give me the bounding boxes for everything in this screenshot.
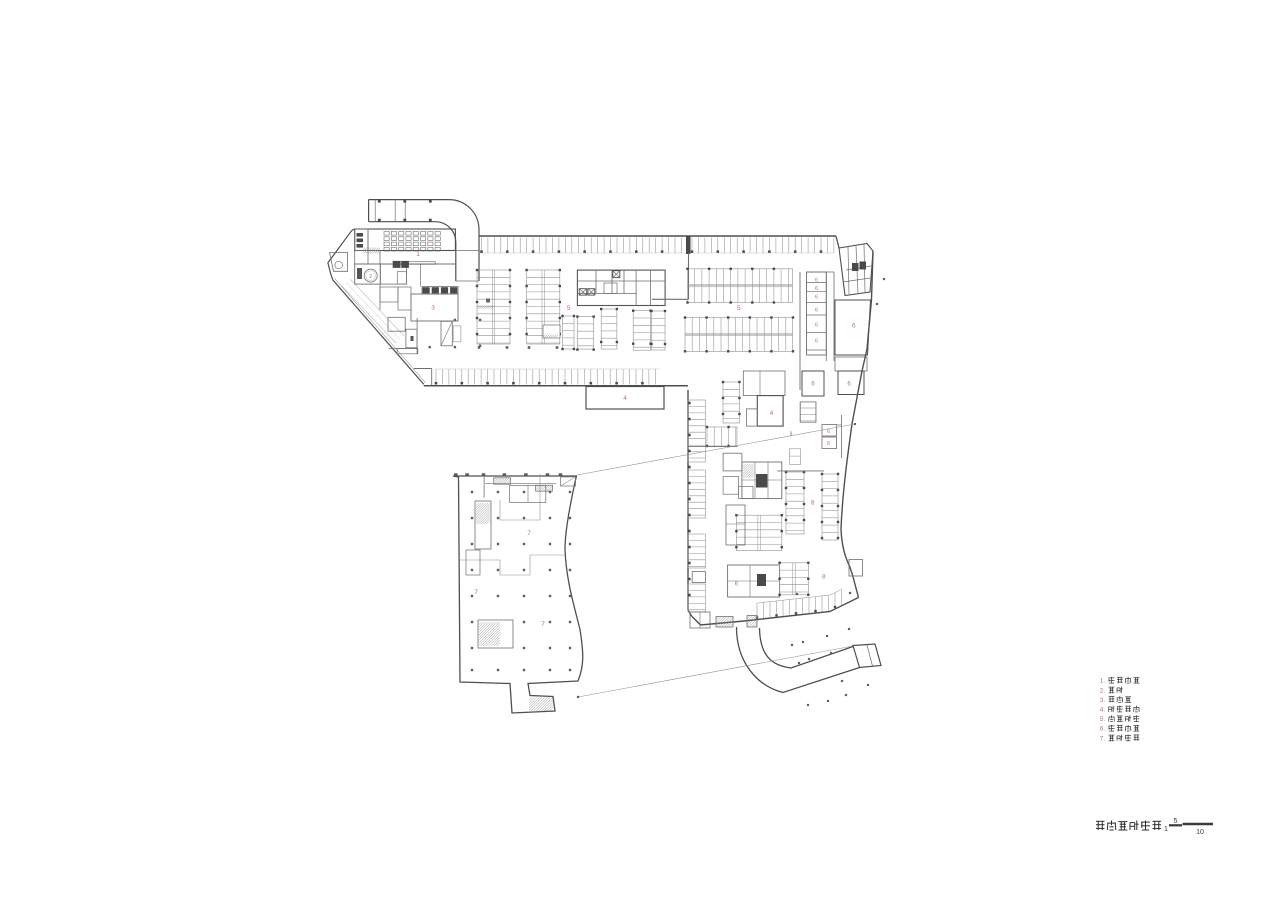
svg-text:5: 5 — [737, 305, 741, 312]
svg-text:8: 8 — [822, 574, 826, 581]
svg-text:4.: 4. — [1100, 707, 1106, 714]
svg-text:7: 7 — [474, 589, 478, 596]
svg-text:6: 6 — [815, 278, 818, 284]
svg-text:1: 1 — [416, 251, 420, 258]
svg-text:5: 5 — [1174, 818, 1178, 825]
svg-text:5: 5 — [567, 305, 571, 312]
svg-text:10: 10 — [1196, 829, 1204, 836]
svg-text:6: 6 — [815, 295, 818, 301]
svg-text:1: 1 — [1164, 826, 1168, 833]
svg-text:7.: 7. — [1100, 735, 1106, 742]
svg-text:3: 3 — [431, 305, 435, 312]
svg-text:6: 6 — [815, 323, 818, 329]
svg-text:6: 6 — [827, 429, 830, 435]
svg-text:4: 4 — [770, 410, 774, 417]
svg-text:5.: 5. — [1100, 716, 1106, 723]
svg-text:8: 8 — [790, 432, 793, 438]
svg-text:6: 6 — [827, 441, 830, 447]
svg-text:4: 4 — [623, 395, 627, 402]
svg-text:2: 2 — [369, 274, 372, 280]
svg-text:7: 7 — [541, 621, 545, 628]
svg-text:6: 6 — [815, 308, 818, 314]
svg-text:8: 8 — [811, 500, 815, 507]
svg-text:7: 7 — [527, 530, 531, 537]
svg-text:1.: 1. — [1100, 678, 1106, 685]
svg-text:3.: 3. — [1100, 697, 1106, 704]
svg-text:2.: 2. — [1100, 687, 1106, 694]
svg-text:6.: 6. — [1100, 726, 1106, 733]
svg-text:6: 6 — [815, 286, 818, 292]
svg-text:6: 6 — [852, 323, 856, 330]
svg-text:6: 6 — [815, 339, 818, 345]
